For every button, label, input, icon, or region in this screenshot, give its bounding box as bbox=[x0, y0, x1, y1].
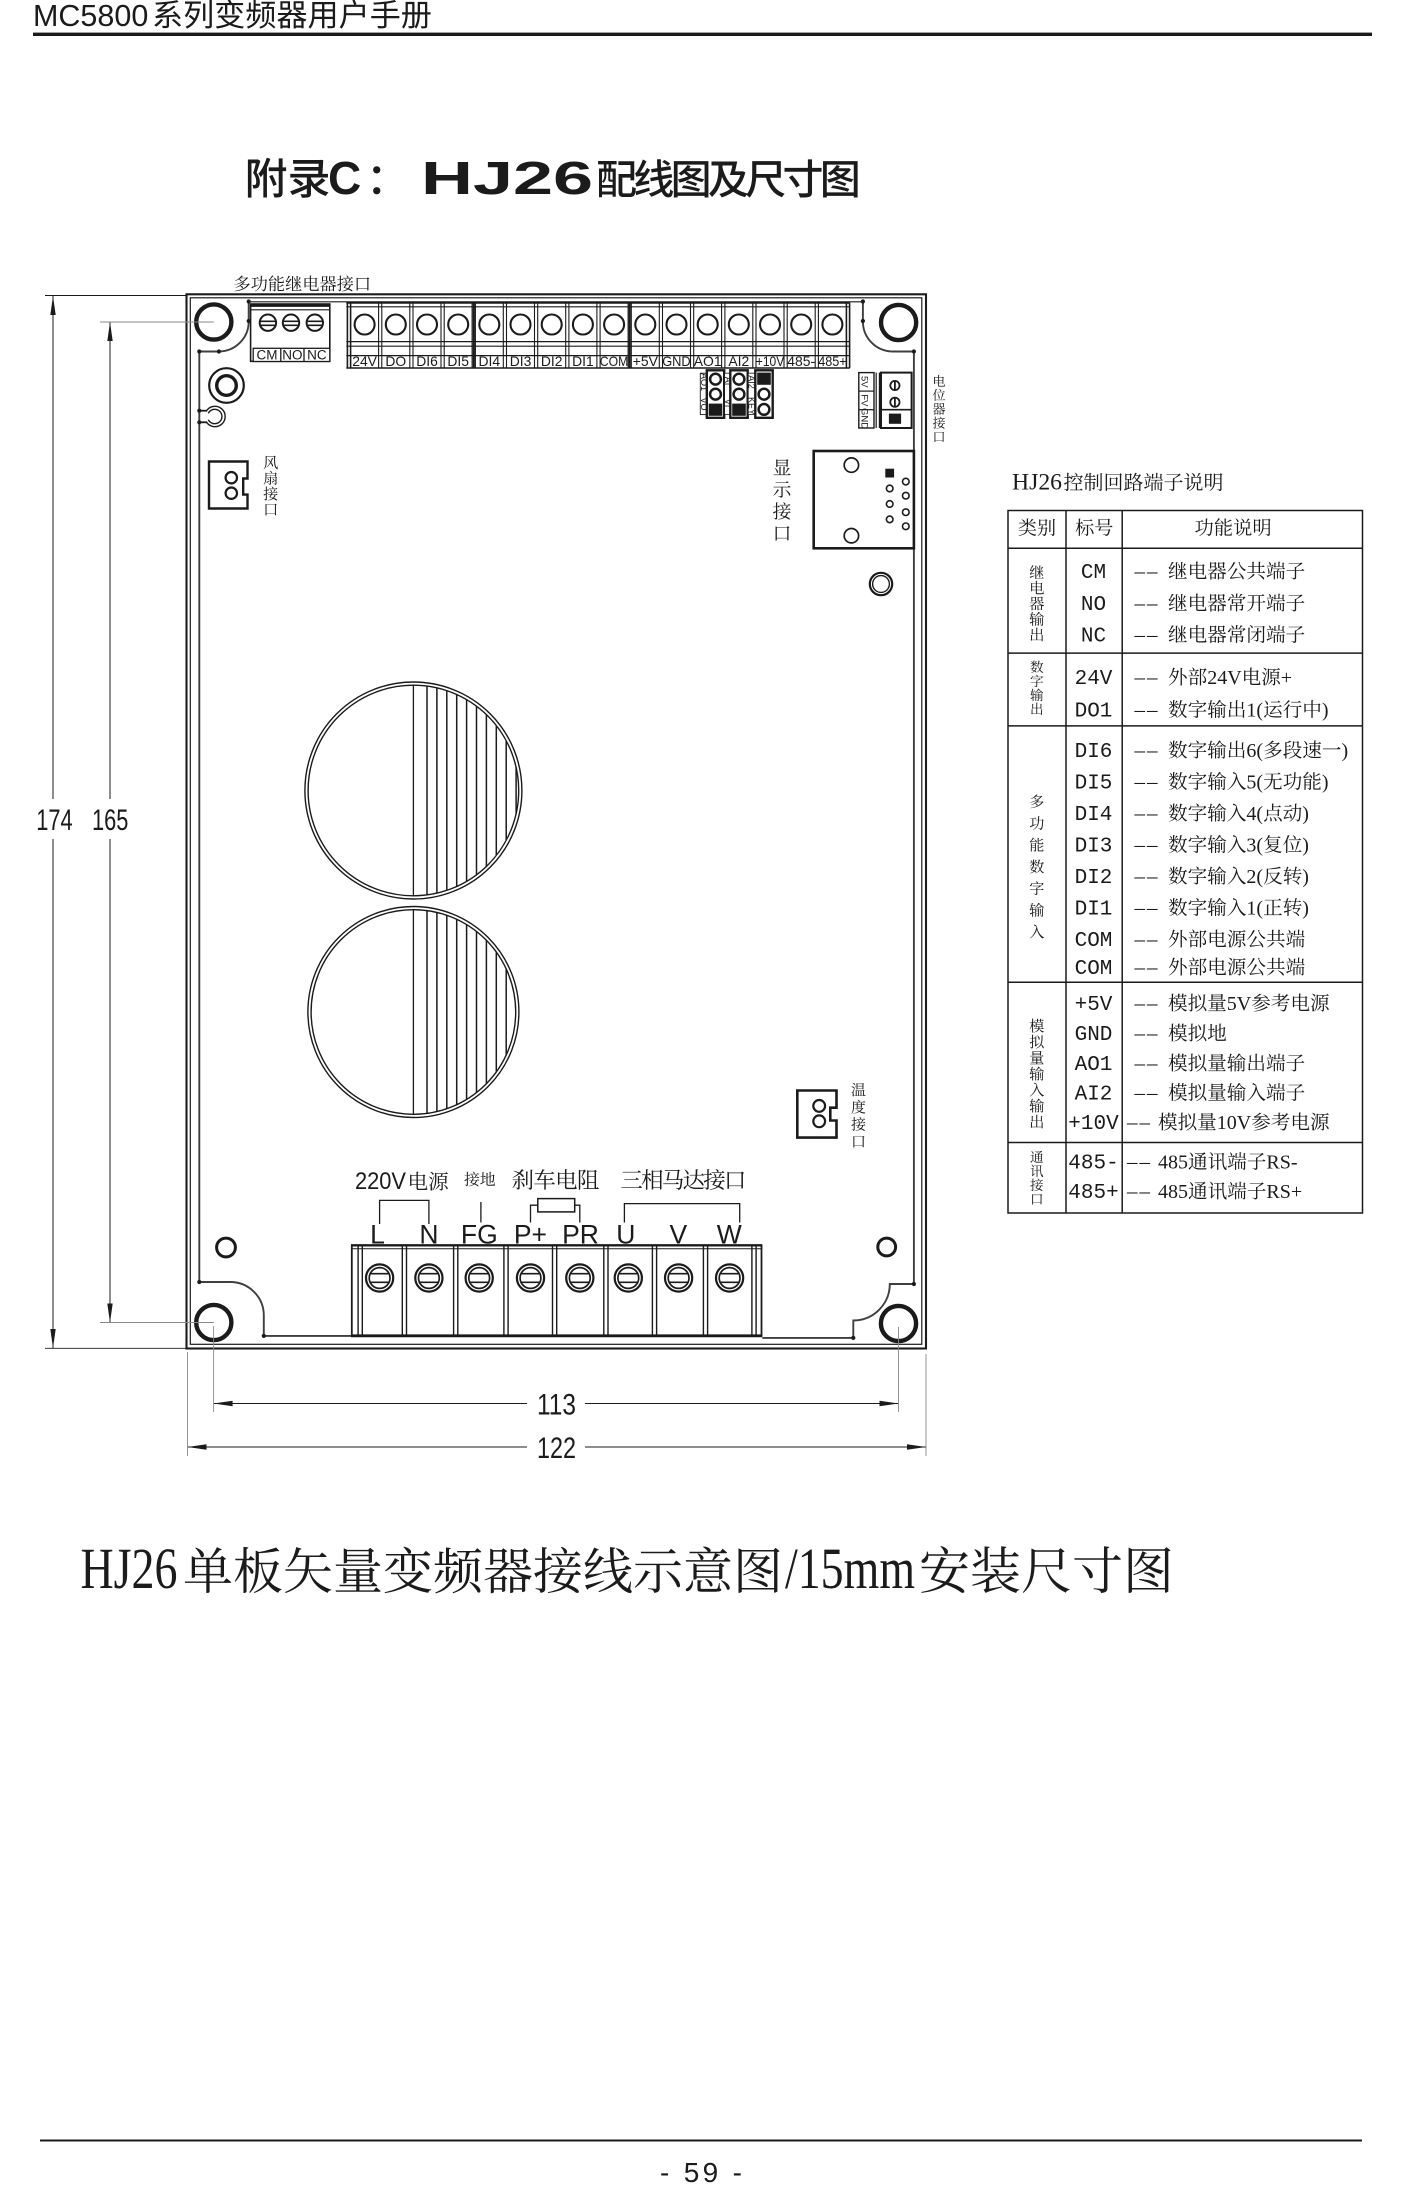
svg-text:): ) bbox=[1302, 866, 1309, 888]
svg-text:174: 174 bbox=[36, 804, 72, 837]
svg-text:DI3: DI3 bbox=[510, 353, 532, 369]
svg-text:1(: 1( bbox=[1246, 898, 1263, 920]
svg-text:485: 485 bbox=[1158, 1181, 1188, 1203]
svg-text:DI6: DI6 bbox=[416, 353, 438, 369]
svg-text:6(: 6( bbox=[1246, 740, 1263, 762]
svg-text:––: –– bbox=[1134, 770, 1160, 794]
svg-text:+10V: +10V bbox=[756, 353, 785, 369]
svg-text:RS+: RS+ bbox=[1266, 1181, 1302, 1203]
svg-text:122: 122 bbox=[537, 1432, 576, 1465]
svg-text:FG: FG bbox=[461, 1220, 498, 1250]
svg-text:––: –– bbox=[1134, 955, 1160, 979]
svg-text:––: –– bbox=[1134, 927, 1160, 951]
svg-text:): ) bbox=[1302, 898, 1309, 920]
svg-text:5V: 5V bbox=[859, 376, 870, 388]
svg-text:COM: COM bbox=[1075, 930, 1113, 953]
svg-text:24V: 24V bbox=[1075, 668, 1113, 691]
svg-text:N: N bbox=[419, 1220, 438, 1250]
svg-text:––: –– bbox=[1134, 833, 1160, 857]
svg-text:DI3: DI3 bbox=[1075, 836, 1113, 859]
svg-text:––: –– bbox=[1134, 623, 1160, 647]
svg-text:GND: GND bbox=[662, 353, 691, 369]
svg-text:W: W bbox=[717, 1220, 742, 1250]
svg-text:DI4: DI4 bbox=[1075, 804, 1113, 827]
svg-text:NO: NO bbox=[282, 347, 302, 362]
svg-text:––: –– bbox=[1134, 559, 1160, 583]
svg-text:24V: 24V bbox=[352, 353, 377, 369]
svg-text:––: –– bbox=[1134, 738, 1160, 762]
svg-text:CM: CM bbox=[1081, 562, 1106, 585]
svg-text:DI6: DI6 bbox=[1075, 741, 1113, 764]
svg-text:5V: 5V bbox=[1227, 993, 1252, 1015]
svg-text:P+: P+ bbox=[514, 1220, 547, 1250]
svg-text:485: 485 bbox=[1158, 1152, 1188, 1174]
svg-text:AI2: AI2 bbox=[1075, 1084, 1113, 1107]
svg-text:+5V: +5V bbox=[633, 353, 659, 369]
svg-text:HJ26: HJ26 bbox=[1012, 470, 1062, 495]
svg-text:L: L bbox=[370, 1220, 385, 1250]
svg-text:165: 165 bbox=[92, 804, 128, 837]
svg-text:/15mm: /15mm bbox=[785, 1536, 915, 1601]
svg-text:+5V: +5V bbox=[1075, 994, 1113, 1017]
svg-text:DI5: DI5 bbox=[1075, 773, 1113, 796]
svg-text:220V: 220V bbox=[355, 1168, 407, 1195]
svg-text:): ) bbox=[1302, 835, 1309, 857]
svg-text:––: –– bbox=[1126, 1110, 1152, 1134]
svg-text:––: –– bbox=[1134, 896, 1160, 920]
svg-text:DO: DO bbox=[385, 353, 406, 369]
svg-text:3(: 3( bbox=[1246, 835, 1263, 857]
svg-text:485+: 485+ bbox=[1068, 1182, 1118, 1205]
svg-text:FV: FV bbox=[859, 394, 870, 407]
svg-text:––: –– bbox=[1134, 864, 1160, 888]
svg-text:24V: 24V bbox=[1207, 667, 1242, 689]
svg-text:DI1: DI1 bbox=[1075, 899, 1113, 922]
svg-text:DI5: DI5 bbox=[447, 353, 469, 369]
svg-text:HJ26: HJ26 bbox=[81, 1536, 178, 1601]
svg-text:––: –– bbox=[1134, 1021, 1160, 1045]
svg-text:): ) bbox=[1322, 772, 1329, 794]
svg-text:+10V: +10V bbox=[1068, 1113, 1119, 1136]
svg-text:): ) bbox=[1322, 700, 1329, 722]
svg-text:+: + bbox=[1281, 667, 1292, 689]
svg-text:485+: 485+ bbox=[818, 353, 847, 369]
svg-text:V: V bbox=[670, 1220, 688, 1250]
svg-text:––: –– bbox=[1134, 665, 1160, 689]
svg-text:AO1: AO1 bbox=[1075, 1054, 1113, 1077]
svg-text:DO1: DO1 bbox=[1075, 701, 1113, 724]
svg-text:113: 113 bbox=[537, 1389, 576, 1422]
svg-text:AO1: AO1 bbox=[694, 353, 722, 369]
svg-text:––: –– bbox=[1134, 801, 1160, 825]
svg-text:DI2: DI2 bbox=[541, 353, 563, 369]
svg-text:5(: 5( bbox=[1246, 772, 1263, 794]
svg-text:DI4: DI4 bbox=[478, 353, 500, 369]
svg-text:CM: CM bbox=[257, 347, 278, 362]
svg-text:DI1: DI1 bbox=[572, 353, 594, 369]
svg-text:NC: NC bbox=[1081, 626, 1106, 649]
svg-text:485-: 485- bbox=[787, 353, 815, 369]
svg-text:NO: NO bbox=[1081, 594, 1106, 617]
svg-text:RS-: RS- bbox=[1266, 1152, 1297, 1174]
svg-text:10V: 10V bbox=[1217, 1112, 1252, 1134]
svg-text:––: –– bbox=[1134, 1051, 1160, 1075]
svg-text:GND: GND bbox=[859, 408, 870, 429]
svg-text:––: –– bbox=[1126, 1150, 1152, 1174]
svg-text:GND: GND bbox=[1075, 1024, 1113, 1047]
svg-text:DI2: DI2 bbox=[1075, 867, 1113, 890]
svg-text:––: –– bbox=[1134, 698, 1160, 722]
svg-text:MC5800: MC5800 bbox=[33, 0, 148, 33]
svg-text:COM: COM bbox=[1075, 958, 1113, 981]
svg-text:2(: 2( bbox=[1246, 866, 1263, 888]
svg-text:––: –– bbox=[1134, 1081, 1160, 1105]
svg-text:4(: 4( bbox=[1246, 803, 1263, 825]
svg-text:485-: 485- bbox=[1068, 1153, 1118, 1176]
svg-text:––: –– bbox=[1126, 1179, 1152, 1203]
svg-text:1(: 1( bbox=[1246, 700, 1263, 722]
svg-text:PR: PR bbox=[562, 1220, 599, 1250]
svg-text:COM: COM bbox=[600, 353, 629, 369]
svg-text:––: –– bbox=[1134, 591, 1160, 615]
svg-text:): ) bbox=[1342, 740, 1349, 762]
svg-text:NC: NC bbox=[307, 347, 327, 362]
svg-text:U: U bbox=[616, 1220, 635, 1250]
svg-text:––: –– bbox=[1134, 991, 1160, 1015]
svg-text:C: C bbox=[328, 152, 361, 204]
svg-text:AI2: AI2 bbox=[728, 353, 749, 369]
svg-text:): ) bbox=[1302, 803, 1309, 825]
svg-text:HJ26: HJ26 bbox=[421, 152, 593, 204]
